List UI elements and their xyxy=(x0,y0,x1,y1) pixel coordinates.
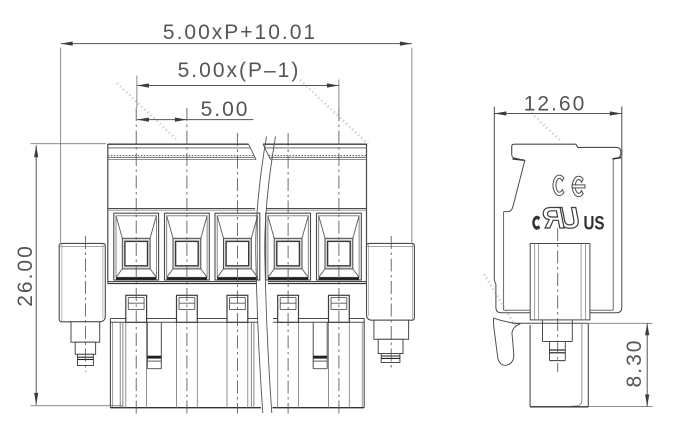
svg-text:UR: UR xyxy=(543,202,580,235)
svg-text:US: US xyxy=(584,214,605,235)
svg-text:26.00: 26.00 xyxy=(14,244,37,307)
svg-text:5.00xP+10.01: 5.00xP+10.01 xyxy=(163,21,317,44)
svg-text:12.60: 12.60 xyxy=(524,93,587,116)
svg-text:8.30: 8.30 xyxy=(623,339,646,388)
svg-text:5.00x(P–1): 5.00x(P–1) xyxy=(178,59,301,82)
svg-text:5.00: 5.00 xyxy=(201,98,250,121)
